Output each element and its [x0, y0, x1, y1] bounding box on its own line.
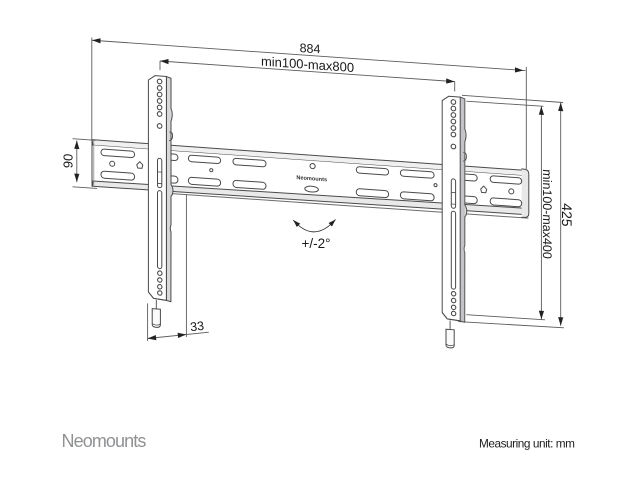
svg-text:884: 884	[300, 41, 321, 56]
svg-text:min100-max800: min100-max800	[261, 54, 354, 75]
svg-text:90: 90	[61, 153, 76, 168]
svg-text:33: 33	[189, 319, 204, 334]
svg-text:+/-2°: +/-2°	[301, 236, 330, 251]
svg-text:Measuring unit: mm: Measuring unit: mm	[479, 436, 575, 450]
svg-text:425: 425	[559, 203, 575, 228]
svg-text:min100-max400: min100-max400	[540, 169, 554, 260]
svg-text:Neomounts: Neomounts	[62, 431, 147, 451]
